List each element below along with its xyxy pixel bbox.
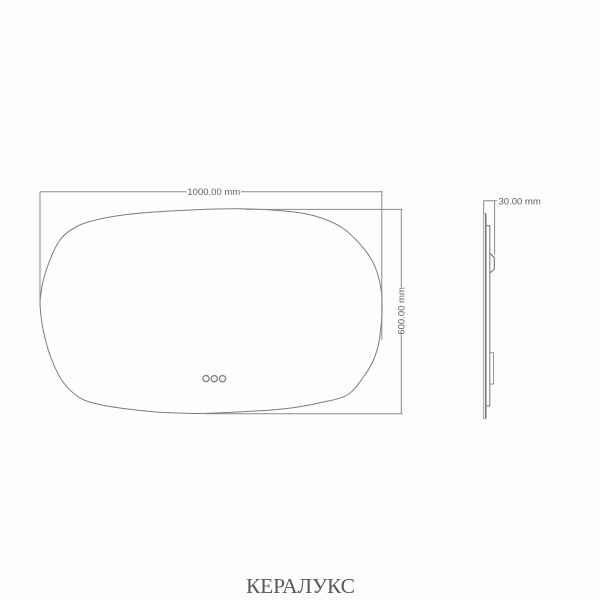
svg-text:КЕРАЛУКС: КЕРАЛУКС	[246, 574, 355, 598]
svg-text:600.00 mm: 600.00 mm	[397, 287, 408, 335]
svg-text:30.00 mm: 30.00 mm	[499, 196, 541, 207]
svg-text:1000.00 mm: 1000.00 mm	[187, 187, 240, 198]
